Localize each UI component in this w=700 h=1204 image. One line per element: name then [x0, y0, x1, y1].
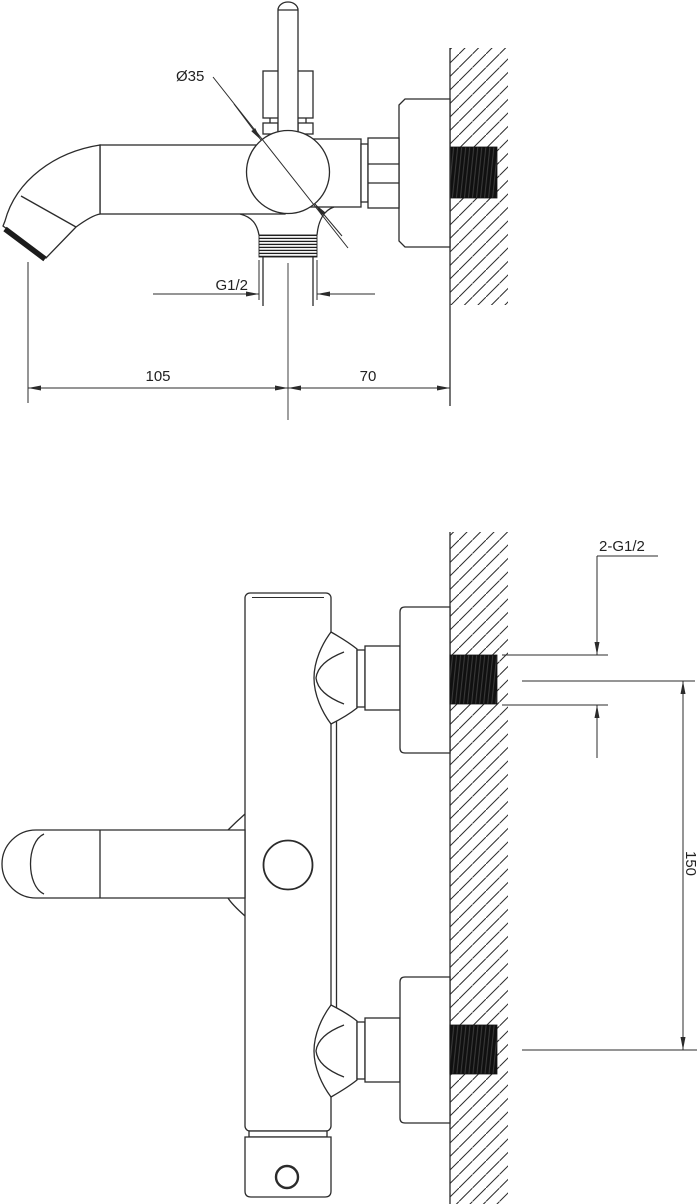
- bottom-inlet-flange: [400, 977, 450, 1123]
- dim-label-spout-diameter: Ø35: [176, 68, 204, 85]
- inlet-thread-stud: [449, 147, 497, 198]
- outlet-fillet-left: [240, 214, 259, 235]
- technical-drawing-page: Ø35 G1/2 105 70: [0, 0, 700, 1204]
- handle-lever: [2, 830, 245, 898]
- diameter-arrow: [234, 104, 261, 140]
- dim-inlet-thread: 2-G1/2: [502, 538, 658, 758]
- union-nut: [368, 138, 399, 208]
- body-cap-seam: [249, 1131, 327, 1137]
- bottom-outlet-circle: [276, 1166, 298, 1188]
- dim-label-outlet-thread: G1/2: [215, 277, 248, 294]
- top-inlet-nipple: [365, 646, 400, 710]
- union-ring: [361, 144, 368, 202]
- wall-hatch-bottom: [450, 532, 508, 1204]
- dim-label-inlet-spacing: 150: [682, 851, 699, 876]
- dim-outlet-thread: G1/2: [153, 260, 375, 300]
- diameter-arrow: [315, 204, 342, 236]
- bottom-inlet-ring: [357, 1022, 365, 1079]
- technical-drawing-canvas: Ø35 G1/2 105 70: [0, 0, 700, 1204]
- handle-flare: [228, 814, 245, 830]
- dim-label-wall-offset: 70: [360, 368, 377, 385]
- top-inlet-flange: [400, 607, 450, 753]
- side-view: Ø35 G1/2 105 70: [3, 2, 508, 420]
- dim-label-spout-reach: 105: [145, 368, 170, 385]
- handle-lever-rod: [278, 2, 298, 134]
- top-inlet-ring: [357, 650, 365, 707]
- handle-pivot-circle: [264, 841, 313, 890]
- outlet-thread: [259, 235, 317, 257]
- front-view: 2-G1/2 150: [2, 532, 699, 1204]
- wall-flange: [399, 99, 450, 247]
- dim-label-inlet-thread: 2-G1/2: [599, 538, 645, 555]
- handle-flare: [228, 898, 245, 916]
- dim-inlet-spacing: 150: [522, 681, 699, 1050]
- bottom-inlet-thread-stud: [450, 1025, 497, 1074]
- bottom-inlet-nipple: [365, 1018, 400, 1082]
- top-inlet-thread-stud: [450, 655, 497, 704]
